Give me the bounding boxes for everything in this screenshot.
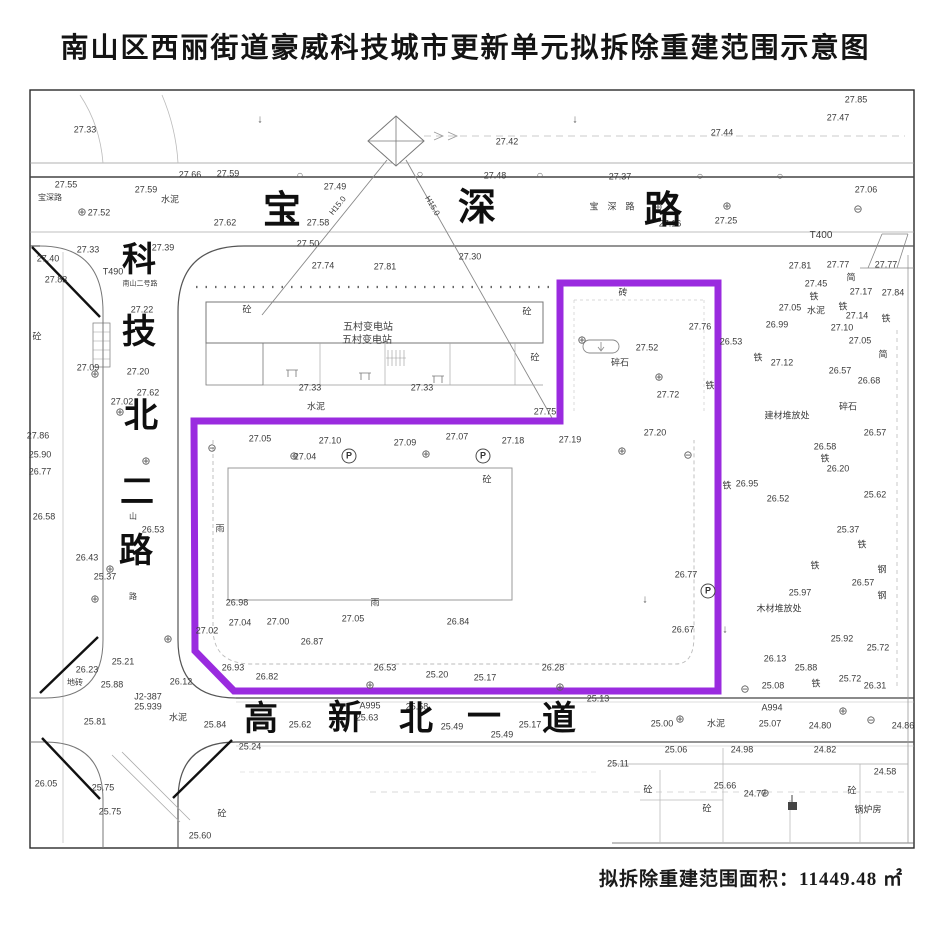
elevation-label: 26.93: [222, 664, 245, 673]
elevation-label: 25.66: [714, 782, 737, 791]
elevation-label: 27.19: [559, 436, 582, 445]
elevation-label: 26.58: [814, 443, 837, 452]
annotation-label: P: [701, 584, 716, 599]
elevation-label: 26.53: [374, 664, 397, 673]
elevation-label: 27.59: [217, 170, 240, 179]
street-name-kejibei2: 路: [119, 535, 153, 569]
elevation-label: 27.04: [229, 619, 252, 628]
elevation-label: 27.12: [771, 359, 794, 368]
elevation-label: 26.58: [33, 513, 56, 522]
elevation-label: 27.09: [394, 439, 417, 448]
annotation-label: 水泥: [707, 720, 725, 729]
elevation-label: 25.72: [839, 675, 862, 684]
elevation-label: 27.50: [297, 240, 320, 249]
map-canvas: [0, 0, 931, 935]
annotation-label: 铁: [857, 541, 866, 550]
elevation-label: 27.25: [715, 217, 738, 226]
annotation-label: 碎石: [611, 359, 629, 368]
elevation-label: 27.00: [267, 618, 290, 627]
map-symbol: ⊕: [77, 208, 86, 219]
annotation-label: P: [342, 449, 357, 464]
elevation-label: 27.14: [846, 312, 869, 321]
street-name-gaoxinbei1: 北: [399, 703, 433, 737]
street-name-baoshen: 路: [644, 192, 682, 230]
street-name-kejibei2: 北: [124, 400, 158, 434]
elevation-label: 25.97: [789, 589, 812, 598]
elevation-label: 27.49: [324, 183, 347, 192]
elevation-label: 26.57: [852, 579, 875, 588]
annotation-label: 铁: [722, 482, 731, 491]
elevation-label: 25.07: [759, 720, 782, 729]
elevation-label: 27.40: [37, 255, 60, 264]
map-symbol: ⊕: [617, 447, 626, 458]
map-symbol: ⊖: [853, 205, 862, 216]
annotation-label: T400: [810, 231, 833, 241]
elevation-label: 27.58: [307, 219, 330, 228]
elevation-label: 27.62: [137, 389, 160, 398]
annotation-label: 铁: [810, 562, 819, 571]
elevation-label: 25.49: [441, 723, 464, 732]
map-symbol: ⊕: [421, 450, 430, 461]
map-symbol: ⊕: [289, 452, 298, 463]
annotation-label: 建材堆放处: [764, 412, 809, 421]
elevation-label: 25.90: [29, 451, 52, 460]
elevation-label: 27.17: [850, 288, 873, 297]
map-symbol: ⊕: [722, 202, 731, 213]
annotation-label: 铁: [809, 293, 818, 302]
elevation-label: 27.77: [827, 261, 850, 270]
map-symbol: ⊕: [365, 681, 374, 692]
annotation-label: 锅炉房: [854, 806, 881, 815]
map-symbol: ⊕: [654, 373, 663, 384]
annotation-label: 水泥: [161, 196, 179, 205]
map-symbol: ⊕: [90, 595, 99, 606]
elevation-label: 27.45: [805, 280, 828, 289]
annotation-label: 水泥: [807, 307, 825, 316]
elevation-label: 27.05: [849, 337, 872, 346]
street-name-gaoxinbei1: 一: [467, 701, 501, 735]
annotation-label: 路: [129, 593, 137, 601]
elevation-label: 26.99: [766, 321, 789, 330]
elevation-label: 26.77: [29, 468, 52, 477]
annotation-label: T490: [103, 268, 124, 277]
map-symbol: ⊕: [163, 635, 172, 646]
street-name-gaoxinbei1: 道: [542, 703, 576, 737]
elevation-label: 25.17: [519, 721, 542, 730]
annotation-label: 钢: [877, 566, 886, 575]
elevation-label: 27.47: [827, 114, 850, 123]
elevation-label: 26.87: [301, 638, 324, 647]
map-symbol: ↓: [257, 115, 263, 126]
annotation-label: 水泥: [169, 714, 187, 723]
annotation-label: 五村变电站: [342, 336, 392, 346]
elevation-label: 25.00: [651, 720, 674, 729]
elevation-label: 25.84: [204, 721, 227, 730]
map-symbol: ⊖: [866, 716, 875, 727]
annotation-label: 砼: [702, 805, 711, 814]
elevation-label: 25.72: [867, 644, 890, 653]
area-summary: 拟拆除重建范围面积：11449.48 ㎡: [599, 864, 903, 891]
elevation-label: 27.86: [27, 432, 50, 441]
map-symbol: ⊖: [207, 444, 216, 455]
elevation-label: 25.92: [831, 635, 854, 644]
map-symbol: ○: [417, 170, 424, 181]
annotation-label: 木材堆放处: [756, 605, 801, 614]
elevation-label: 24.58: [874, 768, 897, 777]
annotation-label: 铁: [820, 455, 829, 464]
elevation-label: 27.48: [484, 172, 507, 181]
annotation-label: 五村变电站: [343, 323, 393, 333]
elevation-label: 27.52: [88, 209, 111, 218]
map-symbol: ↓: [642, 595, 648, 606]
elevation-label: 25.75: [99, 808, 122, 817]
elevation-label: 26.53: [720, 338, 743, 347]
annotation-label: 砼: [530, 354, 539, 363]
elevation-label: 25.62: [289, 721, 312, 730]
elevation-label: 27.83: [45, 276, 68, 285]
site-plan-map: 27.3327.8527.4727.4427.4227.4827.5527.59…: [0, 0, 931, 935]
annotation-label: 雨: [215, 525, 224, 534]
elevation-label: 27.76: [689, 323, 712, 332]
elevation-label: 26.98: [226, 599, 249, 608]
elevation-label: 26.28: [542, 664, 565, 673]
map-symbol: ↓: [722, 625, 728, 636]
elevation-label: 26.31: [864, 682, 887, 691]
elevation-label: 26.43: [76, 554, 99, 563]
elevation-label: 25.20: [426, 671, 449, 680]
annotation-label: 砼: [32, 333, 41, 342]
annotation-label: 砼: [217, 810, 226, 819]
annotation-label: 宝深路: [38, 194, 62, 202]
map-symbol: ⊕: [577, 336, 586, 347]
annotation-label: 钢: [877, 592, 886, 601]
elevation-label: 25.11: [607, 760, 629, 769]
annotation-label: 铁: [811, 680, 820, 689]
annotation-label: J2-387: [134, 693, 162, 702]
annotation-label: 铁: [705, 382, 714, 391]
elevation-label: 25.81: [84, 718, 107, 727]
annotation-label: 砖: [618, 289, 627, 298]
elevation-label: 26.20: [827, 465, 850, 474]
elevation-label: 27.77: [875, 261, 898, 270]
elevation-label: 27.33: [299, 384, 322, 393]
street-name-kejibei2: 科: [122, 244, 156, 278]
elevation-label: 25.60: [189, 832, 212, 841]
annotation-label: 简: [846, 274, 855, 283]
elevation-label: 27.81: [789, 262, 812, 271]
elevation-label: 26.13: [764, 655, 787, 664]
elevation-label: 27.06: [855, 186, 878, 195]
elevation-label: 24.80: [809, 722, 832, 731]
elevation-label: 27.37: [609, 173, 632, 182]
elevation-label: 27.20: [127, 368, 150, 377]
map-symbol: ○: [777, 172, 784, 183]
elevation-label: 27.10: [831, 324, 854, 333]
map-symbol: ⊕: [760, 789, 769, 800]
elevation-label: 27.07: [446, 433, 469, 442]
street-name-baoshen: 深: [458, 189, 496, 227]
annotation-label: 铁: [753, 354, 762, 363]
annotation-label: 南山二号路: [123, 281, 158, 288]
elevation-label: 25.06: [665, 746, 688, 755]
annotation-label: 铁: [881, 315, 890, 324]
street-name-gaoxinbei1: 新: [328, 702, 362, 736]
map-symbol: ⊕: [141, 457, 150, 468]
elevation-label: 27.20: [644, 429, 667, 438]
elevation-label: 27.72: [657, 391, 680, 400]
elevation-label: 27.33: [74, 126, 97, 135]
elevation-label: 25.939: [134, 703, 162, 712]
elevation-label: 24.98: [731, 746, 754, 755]
annotation-label: 地砖: [67, 679, 83, 687]
elevation-label: 27.84: [882, 289, 905, 298]
elevation-label: 24.82: [814, 746, 837, 755]
map-symbol: ○: [537, 171, 544, 182]
annotation-label: 山: [129, 513, 137, 521]
elevation-label: 26.57: [829, 367, 852, 376]
annotation-label: 碎石: [839, 403, 857, 412]
elevation-label: 26.82: [256, 673, 279, 682]
elevation-label: 26.57: [864, 429, 887, 438]
annotation-label: 砼: [522, 308, 531, 317]
elevation-label: 25.21: [112, 658, 135, 667]
elevation-label: 27.85: [845, 96, 868, 105]
annotation-label: 宝: [589, 203, 598, 212]
annotation-label: P: [476, 449, 491, 464]
elevation-label: 25.75: [92, 784, 115, 793]
elevation-label: 26.67: [672, 626, 695, 635]
elevation-label: 27.66: [179, 171, 202, 180]
elevation-label: 27.30: [459, 253, 482, 262]
elevation-label: 26.84: [447, 618, 470, 627]
elevation-label: 27.81: [374, 263, 397, 272]
elevation-label: 27.05: [249, 435, 272, 444]
map-symbol: ○: [697, 172, 704, 183]
powerline-diagonals: [262, 160, 552, 418]
elevation-label: 26.23: [76, 666, 99, 675]
map-symbol: ⊕: [90, 370, 99, 381]
substation-building: [93, 287, 558, 385]
elevation-label: 27.55: [55, 181, 78, 190]
annotation-label: 水泥: [307, 403, 325, 412]
elevation-label: 25.08: [762, 682, 785, 691]
street-name-kejibei2: 技: [122, 316, 156, 350]
annotation-label: 砼: [482, 476, 491, 485]
elevation-label: 26.12: [170, 678, 193, 687]
annotation-label: 砼: [643, 786, 652, 795]
elevation-label: 27.05: [779, 304, 802, 313]
map-symbol: ⊕: [675, 715, 684, 726]
yard-structures: [112, 234, 914, 843]
elevation-label: 26.95: [736, 480, 759, 489]
map-symbol: ↓: [572, 115, 578, 126]
elevation-label: 27.05: [342, 615, 365, 624]
elevation-label: 27.52: [636, 344, 659, 353]
map-symbol: ⊕: [105, 565, 114, 576]
map-symbol: ⊕: [838, 707, 847, 718]
elevation-label: 26.77: [675, 571, 698, 580]
elevation-label: 26.68: [858, 377, 881, 386]
elevation-label: 27.42: [496, 138, 519, 147]
elevation-label: 24.86: [892, 722, 915, 731]
elevation-label: 27.33: [77, 246, 100, 255]
elevation-label: 27.02: [196, 627, 219, 636]
annotation-label: 砼: [847, 787, 856, 796]
annotation-label: A994: [761, 704, 782, 713]
annotation-label: 路: [625, 203, 634, 212]
annotation-label: 雨: [370, 599, 379, 608]
elevation-label: 27.75: [534, 408, 557, 417]
map-symbol: ⊕: [555, 683, 564, 694]
street-name-gaoxinbei1: 高: [244, 703, 278, 737]
survey-diamond: [368, 116, 905, 166]
elevation-label: 26.05: [35, 780, 58, 789]
street-name-kejibei2: 二: [120, 476, 154, 510]
annotation-label: 深: [607, 203, 616, 212]
elevation-label: 26.52: [767, 495, 790, 504]
elevation-label: 27.74: [312, 262, 335, 271]
elevation-label: 25.17: [474, 674, 497, 683]
elevation-label: 27.62: [214, 219, 237, 228]
elevation-label: 27.44: [711, 129, 734, 138]
elevation-label: 25.13: [587, 695, 610, 704]
annotation-label: 简: [878, 351, 887, 360]
elevation-label: 25.88: [101, 681, 124, 690]
elevation-label: 25.62: [864, 491, 887, 500]
elevation-label: 25.24: [239, 743, 262, 752]
elevation-label: 27.33: [411, 384, 434, 393]
map-symbol: ○: [297, 171, 304, 182]
annotation-label: 砼: [242, 306, 251, 315]
street-name-baoshen: 宝: [263, 192, 301, 230]
elevation-label: 27.18: [502, 437, 525, 446]
elevation-label: 25.37: [837, 526, 860, 535]
elevation-label: 27.10: [319, 437, 342, 446]
elevation-label: 27.59: [135, 186, 158, 195]
annotation-label: A995: [359, 702, 380, 711]
map-symbol: ⊖: [683, 451, 692, 462]
elevation-label: 25.88: [795, 664, 818, 673]
map-symbol: ⊖: [740, 685, 749, 696]
